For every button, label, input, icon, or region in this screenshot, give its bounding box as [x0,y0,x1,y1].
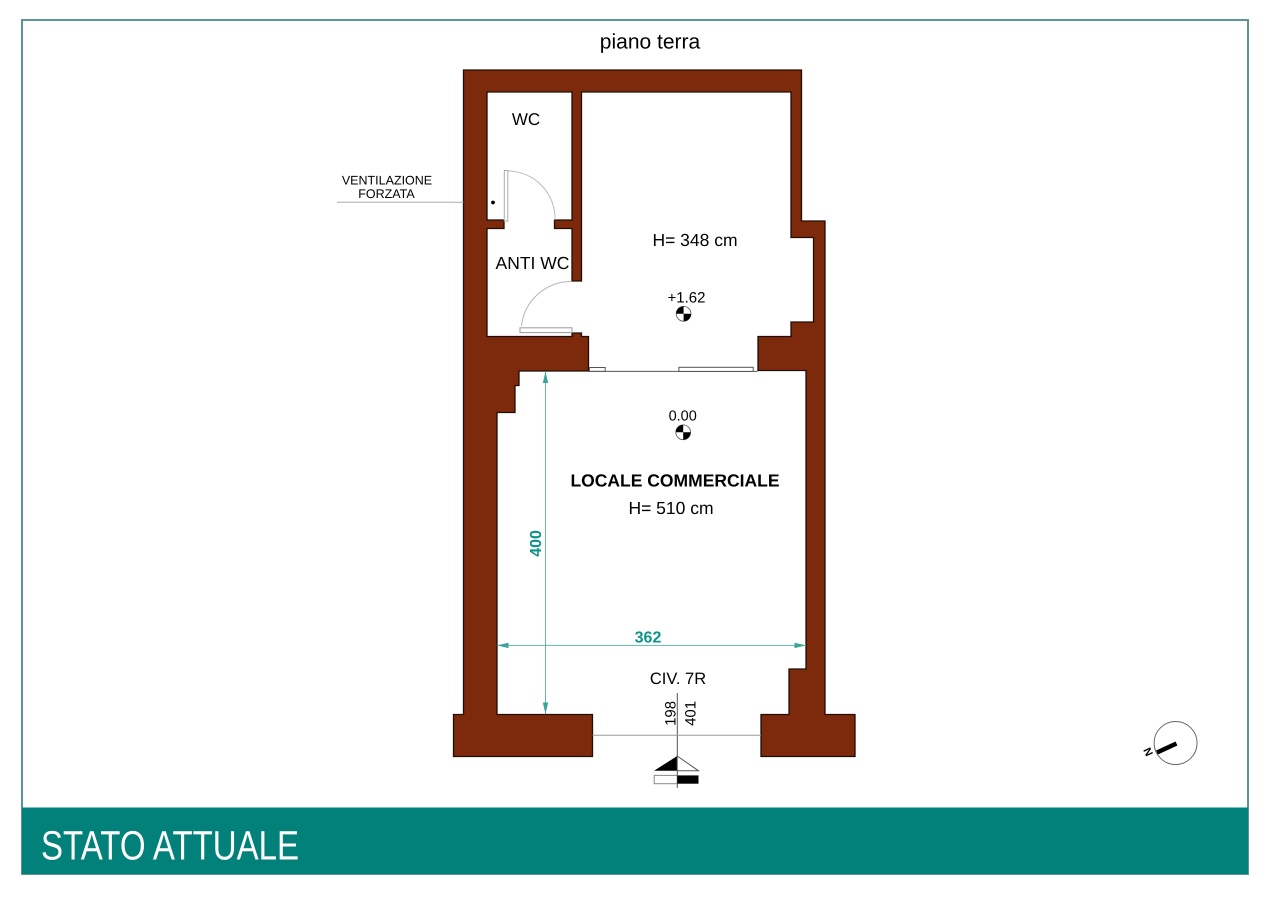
svg-text:H= 510 cm: H= 510 cm [628,498,713,518]
svg-text:362: 362 [635,630,662,647]
svg-text:400: 400 [528,530,545,557]
svg-text:401: 401 [683,701,700,726]
svg-text:WC: WC [512,110,540,129]
svg-text:+1.62: +1.62 [668,290,706,307]
svg-text:CIV. 7R: CIV. 7R [650,670,706,688]
svg-text:H= 348 cm: H= 348 cm [652,230,737,250]
svg-text:STATO ATTUALE: STATO ATTUALE [41,822,299,868]
svg-text:FORZATA: FORZATA [358,187,415,201]
svg-text:VENTILAZIONE: VENTILAZIONE [342,173,432,187]
svg-text:ANTI WC: ANTI WC [496,253,570,273]
svg-text:0.00: 0.00 [669,409,697,425]
svg-text:LOCALE COMMERCIALE: LOCALE COMMERCIALE [570,471,779,491]
svg-text:198: 198 [663,701,680,726]
svg-text:piano terra: piano terra [600,31,701,54]
